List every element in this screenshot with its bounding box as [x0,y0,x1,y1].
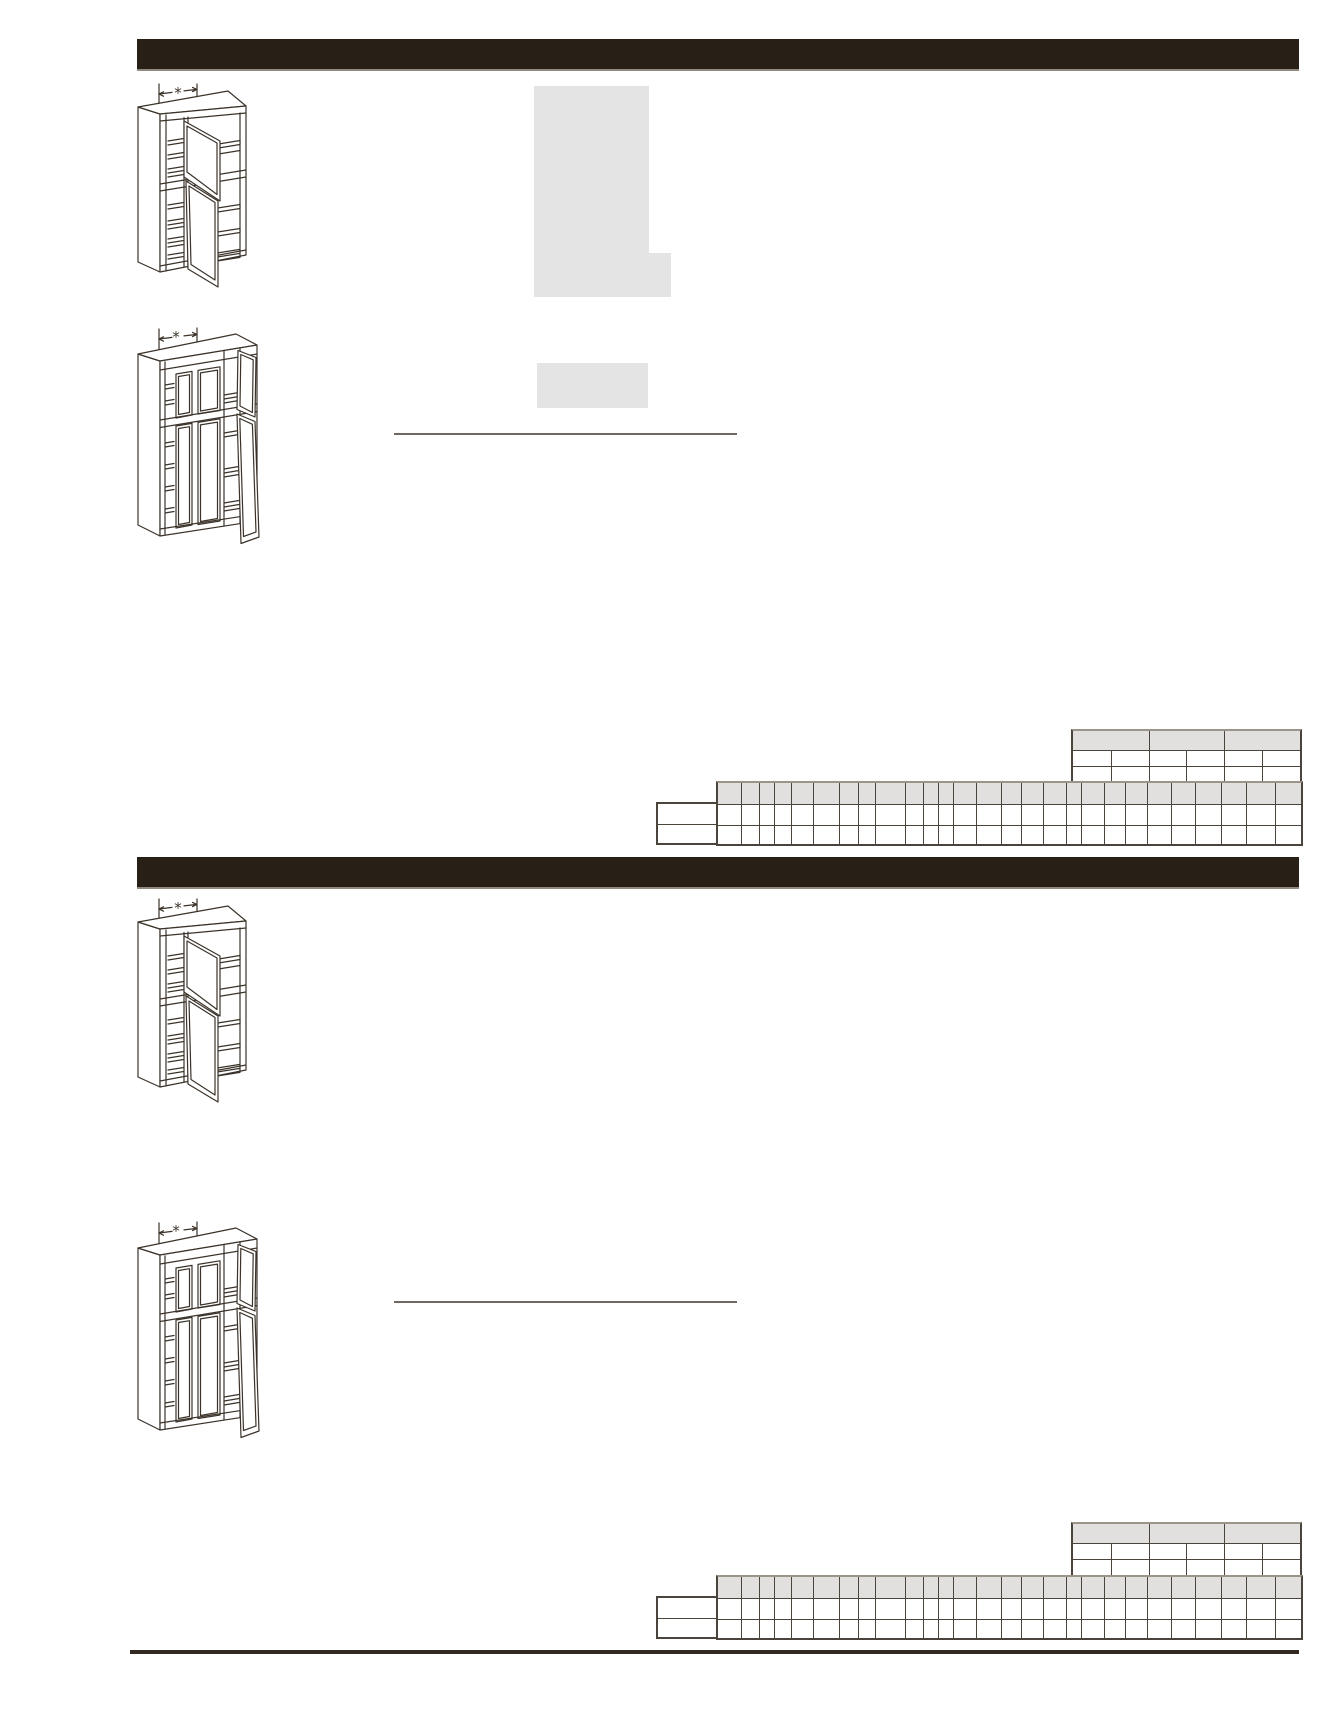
size-reference-table [1071,729,1302,784]
spec-table-cell [1147,826,1171,844]
spec-table-cell [1043,1620,1066,1638]
spec-table-cell [1171,1620,1195,1638]
spec-table-cell [759,805,774,825]
table-header-row [718,1577,1301,1598]
spec-table-cell [953,805,976,825]
table-row [718,1619,1301,1638]
spec-table-cell [1021,1620,1043,1638]
spec-table-cell [1081,826,1104,844]
spec-table-cell [1147,805,1171,825]
size-table-cell [1111,1544,1149,1559]
spec-table-cell [1066,826,1081,844]
spec-table-cell [1221,826,1246,844]
size-table-cell [1186,1560,1224,1575]
size-table-cell [1262,1560,1300,1575]
spec-table-cell [905,1599,923,1619]
spec-table-header-cell [1275,1577,1301,1598]
spec-table-cell [1104,1620,1125,1638]
table-header-row [1073,1524,1300,1543]
spec-table-cell [1104,826,1125,844]
spec-table-header-cell [905,783,923,804]
spec-table-cell [923,1599,938,1619]
spec-table-cell [875,826,905,844]
spec-table-cell [1001,826,1021,844]
size-table-cell [1073,1560,1111,1575]
spec-table-cell [1171,826,1195,844]
spec-table-cell [813,826,839,844]
spec-table-cell [1081,805,1104,825]
spec-table-cell [1001,805,1021,825]
spec-table-cell [1195,826,1221,844]
spec-table-header-cell [1001,1577,1021,1598]
spec-table-header-cell [774,1577,791,1598]
spec-table-cell [791,1599,813,1619]
size-table-cell [1149,1544,1187,1559]
spec-table-label-cell [658,1598,718,1618]
spec-table-cell [1021,1599,1043,1619]
spec-table-cell [718,1599,741,1619]
spec-table-cell [1104,805,1125,825]
size-table-cell [1224,1560,1262,1575]
spec-table-cell [905,805,923,825]
spec-table-header-cell [953,783,976,804]
spec-table-label-column [656,1596,720,1639]
spec-table-label-cell [658,824,718,843]
spec-table-cell [813,1599,839,1619]
spec-table-header-cell [1081,1577,1104,1598]
spec-table-header-cell [1147,783,1171,804]
size-table-cell [1149,767,1187,782]
spec-table-header-cell [1246,1577,1275,1598]
size-table-cell [1149,751,1187,766]
spec-table-cell [1001,1599,1021,1619]
spec-table-grid [716,1575,1303,1640]
spec-table-header-cell [774,783,791,804]
table-row [1073,1543,1300,1559]
spec-table-header-cell [1221,1577,1246,1598]
spec-table-header-cell [1195,783,1221,804]
spec-table-cell [875,1599,905,1619]
spec-table-label-cell [658,804,718,824]
size-table-cell [1186,751,1224,766]
spec-table-cell [953,826,976,844]
spec-table-grid [716,781,1303,846]
spec-table-header-cell [741,783,759,804]
spec-table-cell [1043,805,1066,825]
spec-table-cell [813,805,839,825]
spec-table-header-cell [875,783,905,804]
spec-table-header-cell [839,1577,858,1598]
spec-table-header-cell [858,783,875,804]
spec-table-cell [976,1599,1001,1619]
spec-table-header-cell [791,783,813,804]
spec-table-cell [858,1620,875,1638]
spec-table-cell [905,1620,923,1638]
spec-table-cell [791,805,813,825]
spec-table-cell [1275,826,1301,844]
table-row [1073,766,1300,782]
size-table-cell [1186,1544,1224,1559]
spec-table-cell [1246,1599,1275,1619]
spec-table-cell [1246,805,1275,825]
spec-table-cell [839,1620,858,1638]
spec-table-header-cell [1125,783,1147,804]
size-table-cell [1073,767,1111,782]
spec-table-cell [1081,1620,1104,1638]
spec-table-cell [759,1599,774,1619]
spec-table-header-cell [1171,783,1195,804]
spec-table-cell [1195,1599,1221,1619]
size-table-header-cell [1224,1524,1300,1543]
size-table-header-cell [1149,1524,1225,1543]
spec-table-header-cell [718,1577,741,1598]
spec-table-cell [759,1620,774,1638]
spec-table-header-cell [1043,783,1066,804]
utility-pantry-illustration [132,325,264,547]
spec-table-cell [839,1599,858,1619]
spec-table-header-cell [839,783,858,804]
size-table-cell [1262,767,1300,782]
spec-table-cell [1171,1599,1195,1619]
size-table-cell [1224,767,1262,782]
spec-table-label-cell [658,1618,718,1637]
spec-table-cell [741,805,759,825]
size-table-cell [1111,751,1149,766]
spec-table-header-cell [813,783,839,804]
spec-table-header-cell [1147,1577,1171,1598]
spec-table-cell [1081,1599,1104,1619]
spec-table-cell [1147,1599,1171,1619]
spec-table-header-cell [1221,783,1246,804]
spec-table-cell [938,826,953,844]
dimension-star-label: * [168,1224,184,1239]
spec-table-cell [1125,1620,1147,1638]
table-row [718,1598,1301,1619]
table-header-row [1073,731,1300,750]
spec-table-cell [1275,805,1301,825]
spec-table-header-cell [938,1577,953,1598]
spec-table-cell [858,1599,875,1619]
spec-table-header-cell [741,1577,759,1598]
spec-table-header-cell [1001,783,1021,804]
spec-table-cell [839,826,858,844]
spec-table-header-cell [1081,783,1104,804]
spec-table-cell [1021,826,1043,844]
blind-corner-pantry-illustration [132,81,262,293]
spec-table-header-cell [858,1577,875,1598]
spec-table-cell [1275,1599,1301,1619]
section-1-title-bar [137,39,1299,71]
spec-table-header-cell [1066,1577,1081,1598]
spec-table-cell [875,805,905,825]
dimension-star-label: * [170,901,186,916]
spec-table-header-cell [813,1577,839,1598]
spec-table-header-cell [718,783,741,804]
dimension-star-label: * [168,330,184,345]
spec-table-header-cell [1171,1577,1195,1598]
text-placeholder [537,363,648,408]
spec-table-header-cell [759,783,774,804]
spec-table-cell [875,1620,905,1638]
catalog-page: * * * * [0,0,1338,1731]
spec-table-cell [953,1599,976,1619]
spec-table-cell [905,826,923,844]
spec-table-cell [1021,805,1043,825]
spec-table-header-cell [923,783,938,804]
size-table-cell [1073,751,1111,766]
spec-table-cell [1221,1620,1246,1638]
spec-table-cell [774,805,791,825]
spec-table-cell [1043,1599,1066,1619]
spec-table-cell [1104,1599,1125,1619]
spec-table-cell [718,1620,741,1638]
size-table-header-cell [1073,1524,1149,1543]
spec-table-cell [839,805,858,825]
spec-table-header-cell [923,1577,938,1598]
size-table-cell [1262,1544,1300,1559]
spec-table-header-cell [1021,1577,1043,1598]
spec-table-cell [938,1599,953,1619]
spec-table-cell [718,805,741,825]
spec-table-cell [759,826,774,844]
spec-table-cell [976,826,1001,844]
spec-table-header-cell [1275,783,1301,804]
spec-table-cell [741,1599,759,1619]
spec-table-header-cell [875,1577,905,1598]
spec-table-cell [923,805,938,825]
spec-table-cell [976,805,1001,825]
spec-table-header-cell [791,1577,813,1598]
spec-table-cell [1043,826,1066,844]
size-table-header-cell [1149,731,1225,750]
spec-table-header-cell [976,1577,1001,1598]
spec-table-cell [953,1620,976,1638]
spec-table-cell [858,826,875,844]
size-table-header-cell [1224,731,1300,750]
spec-table-cell [1066,805,1081,825]
spec-table-cell [938,805,953,825]
spec-table-cell [1125,805,1147,825]
divider-line [394,1301,737,1303]
spec-table-cell [718,826,741,844]
size-reference-table [1071,1522,1302,1577]
spec-table-header-cell [976,783,1001,804]
size-table-cell [1224,1544,1262,1559]
spec-table-cell [774,1620,791,1638]
size-table-cell [1111,767,1149,782]
size-table-cell [1073,1544,1111,1559]
spec-table-header-cell [1043,1577,1066,1598]
spec-table-cell [1246,826,1275,844]
spec-table-cell [1221,1599,1246,1619]
spec-table-cell [1125,826,1147,844]
spec-table-header-cell [759,1577,774,1598]
spec-table-header-cell [1066,783,1081,804]
spec-table-header-cell [1104,783,1125,804]
spec-table-cell [791,1620,813,1638]
spec-table-label-column [656,802,720,845]
spec-table-cell [1066,1620,1081,1638]
size-table-cell [1224,751,1262,766]
size-table-cell [1262,751,1300,766]
spec-table-cell [1066,1599,1081,1619]
spec-table-cell [1246,1620,1275,1638]
table-row [1073,1559,1300,1575]
spec-table-cell [741,826,759,844]
spec-table-cell [1001,1620,1021,1638]
spec-table-header-cell [938,783,953,804]
spec-table-header-cell [905,1577,923,1598]
table-header-row [718,783,1301,804]
section-2-title-bar [137,857,1299,889]
spec-table-header-cell [1246,783,1275,804]
size-table-header-cell [1073,731,1149,750]
table-row [1073,750,1300,766]
spec-table-cell [1275,1620,1301,1638]
image-placeholder [534,86,649,297]
spec-table-cell [774,1599,791,1619]
spec-table-header-cell [1195,1577,1221,1598]
spec-table-header-cell [1104,1577,1125,1598]
spec-table-cell [858,805,875,825]
spec-table-header-cell [1021,783,1043,804]
spec-table-header-cell [1125,1577,1147,1598]
spec-table-header-cell [953,1577,976,1598]
spec-table-cell [774,826,791,844]
image-placeholder-extension [649,253,671,297]
spec-table-cell [938,1620,953,1638]
size-table-cell [1186,767,1224,782]
spec-table-cell [1147,1620,1171,1638]
spec-table-cell [976,1620,1001,1638]
spec-table-cell [923,826,938,844]
spec-table-cell [1195,805,1221,825]
size-table-cell [1149,1560,1187,1575]
spec-table-cell [791,826,813,844]
footer-rule [130,1650,1299,1654]
spec-table-cell [1221,805,1246,825]
dimension-star-label: * [170,86,186,101]
spec-table-cell [813,1620,839,1638]
spec-table-cell [1195,1620,1221,1638]
blind-corner-pantry-illustration [132,896,262,1108]
spec-table-cell [741,1620,759,1638]
size-table-cell [1111,1560,1149,1575]
spec-table-cell [1171,805,1195,825]
spec-table-cell [923,1620,938,1638]
spec-table-cell [1125,1599,1147,1619]
divider-line [394,433,737,435]
table-row [718,825,1301,844]
utility-pantry-illustration [132,1219,264,1441]
table-row [718,804,1301,825]
